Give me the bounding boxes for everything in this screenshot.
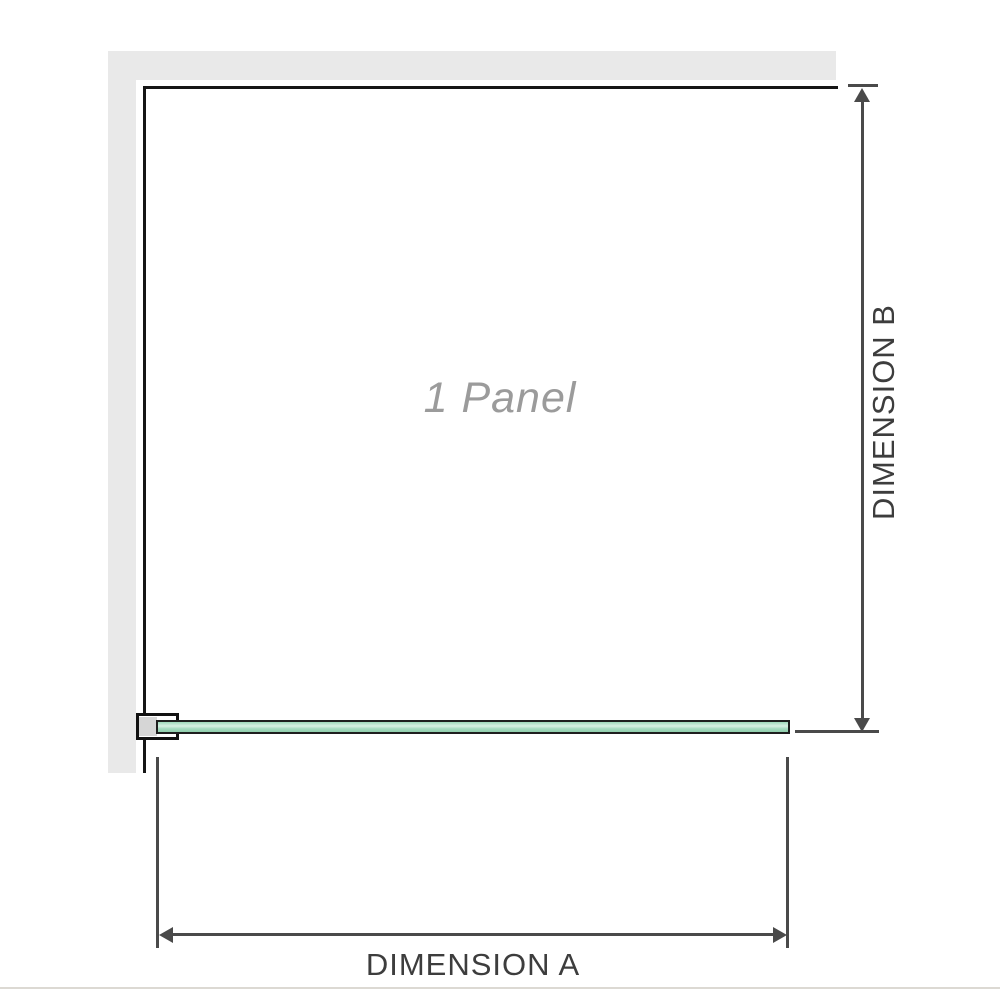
wall-top — [108, 51, 836, 80]
arrow-left-icon — [159, 927, 173, 943]
dimension-a-line — [170, 933, 775, 936]
bracket-insert — [139, 717, 157, 736]
dimension-a-label: DIMENSION A — [323, 947, 623, 983]
dimension-b-label: DIMENSION B — [869, 262, 899, 562]
panel-outline-left — [143, 86, 146, 773]
glass-panel — [156, 720, 790, 734]
arrow-right-icon — [773, 927, 787, 943]
dimension-a-right-extension — [786, 757, 789, 948]
shower-panel-diagram: 1 Panel DIMENSION B DIMENSION A — [0, 0, 1000, 1000]
dimension-b-line — [861, 97, 864, 722]
wall-left — [108, 51, 136, 773]
dimension-a-left-extension — [156, 757, 159, 948]
panel-outline-top — [143, 86, 838, 89]
panel-count-label: 1 Panel — [300, 368, 700, 428]
arrow-up-icon — [854, 88, 870, 102]
dimension-b-top-tick — [848, 84, 878, 87]
arrow-down-icon — [854, 718, 870, 732]
bottom-border-line — [0, 987, 1000, 989]
